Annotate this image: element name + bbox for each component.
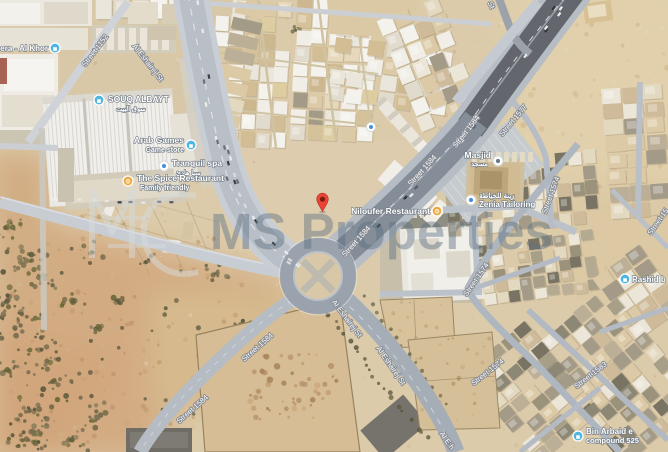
svg-text:SOUQ ALBAYT: SOUQ ALBAYT [108, 94, 170, 104]
svg-text:Masjid: Masjid [465, 150, 491, 160]
svg-text:مسجد: مسجد [471, 161, 488, 168]
svg-text:compound 525: compound 525 [586, 436, 639, 445]
svg-text:Tranquil spa: Tranquil spa [172, 158, 222, 168]
svg-text:Zenia Tailoring: Zenia Tailoring [479, 200, 535, 209]
svg-text:Arab Games: Arab Games [134, 135, 184, 145]
svg-text:سوق البيت: سوق البيت [116, 105, 146, 113]
svg-text:◼: ◼ [53, 46, 58, 52]
svg-text:Bin Arbaid e: Bin Arbaid e [586, 427, 633, 436]
svg-text:◼: ◼ [97, 98, 102, 104]
svg-text:Meera - Al Khor: Meera - Al Khor [0, 44, 48, 53]
svg-text:◼: ◼ [576, 434, 581, 440]
svg-text:❂: ❂ [434, 208, 439, 215]
svg-text:◼: ◼ [623, 277, 628, 283]
svg-text:Family friendly: Family friendly [140, 185, 190, 192]
svg-text:❂: ❂ [125, 178, 130, 185]
svg-text:The Spice Restaurant: The Spice Restaurant [137, 173, 224, 183]
svg-text:Rashid b: Rashid b [632, 275, 666, 284]
svg-text:Game store: Game store [145, 147, 184, 154]
svg-text:◼: ◼ [189, 143, 194, 149]
svg-text:Niloufer Restaurant: Niloufer Restaurant [351, 206, 430, 216]
svg-text:زينة للخياطة: زينة للخياطة [479, 192, 515, 200]
